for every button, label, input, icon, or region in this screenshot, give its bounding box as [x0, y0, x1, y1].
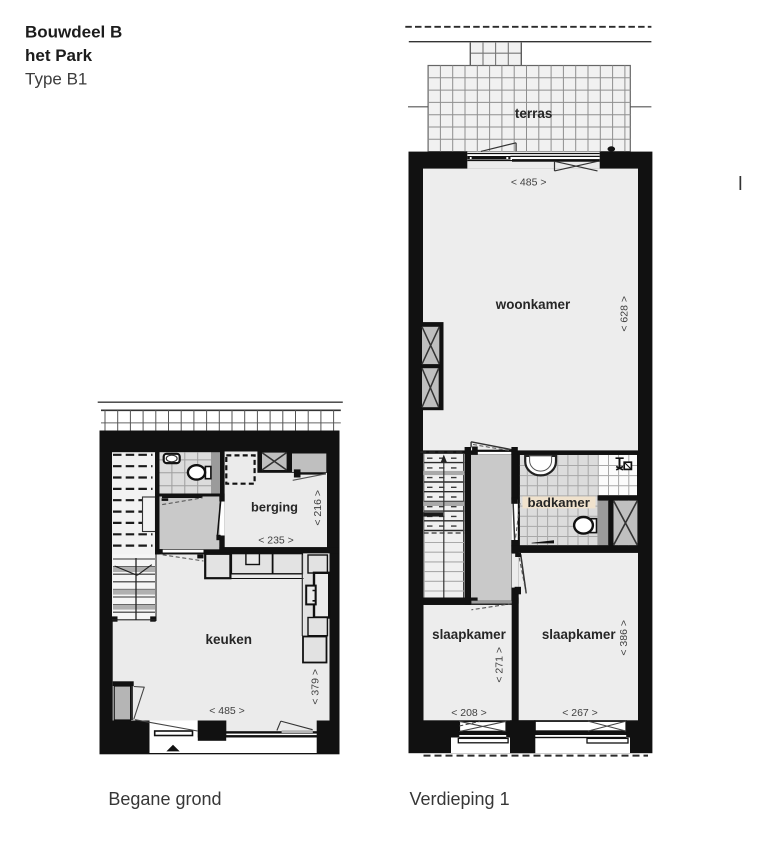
svg-text:< 386 >: < 386 >: [618, 620, 630, 656]
svg-text:< 208 >: < 208 >: [451, 707, 487, 719]
svg-text:Begane grond: Begane grond: [108, 789, 221, 809]
svg-text:Verdieping 1: Verdieping 1: [410, 789, 510, 809]
svg-text:< 271 >: < 271 >: [494, 647, 506, 683]
svg-text:slaapkamer: slaapkamer: [432, 627, 506, 642]
svg-text:< 628 >: < 628 >: [618, 296, 630, 332]
svg-text:< 235 >: < 235 >: [258, 534, 294, 546]
svg-text:berging: berging: [251, 500, 298, 515]
svg-text:slaapkamer: slaapkamer: [542, 627, 616, 642]
svg-text:< 267 >: < 267 >: [562, 707, 598, 719]
svg-text:Bouwdeel B: Bouwdeel B: [25, 23, 122, 42]
svg-text:< 485 >: < 485 >: [511, 176, 547, 188]
svg-text:badkamer: badkamer: [528, 495, 590, 510]
svg-text:< 379 >: < 379 >: [310, 669, 322, 705]
svg-text:terras: terras: [515, 106, 553, 121]
svg-text:< 216 >: < 216 >: [312, 490, 324, 526]
svg-text:woonkamer: woonkamer: [495, 297, 571, 312]
svg-text:Type B1: Type B1: [25, 70, 87, 89]
svg-text:keuken: keuken: [206, 632, 253, 647]
svg-text:het Park: het Park: [25, 46, 93, 65]
svg-text:< 485 >: < 485 >: [209, 705, 245, 717]
